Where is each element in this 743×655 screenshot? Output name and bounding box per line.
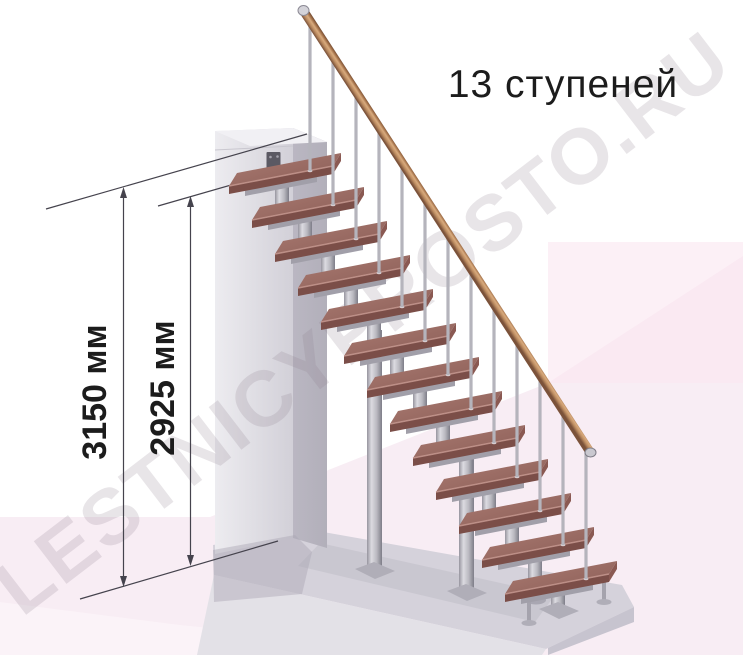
baluster <box>354 90 357 239</box>
baluster <box>492 302 495 443</box>
baluster <box>446 231 449 375</box>
support-column <box>367 330 382 566</box>
handrail-top-cap <box>298 6 309 16</box>
baluster <box>469 267 472 409</box>
baluster <box>423 196 426 341</box>
baluster <box>515 338 518 477</box>
baluster <box>377 125 380 273</box>
leg-foot <box>597 599 612 605</box>
bracket-bolt <box>276 155 279 158</box>
leg-foot <box>522 620 537 626</box>
dimension-label-overall: 3150 мм <box>76 324 114 459</box>
baluster <box>561 408 564 545</box>
baluster <box>584 444 587 579</box>
baluster <box>308 19 311 171</box>
dimension-label-tread: 2925 мм <box>144 320 182 455</box>
stair-diagram: LESTNICYPROSTO.RU 3150 мм 2925 мм 13 сту… <box>0 0 743 655</box>
baluster <box>538 373 541 511</box>
page-title: 13 ступеней <box>448 63 678 106</box>
baluster <box>331 54 334 205</box>
bracket-bolt <box>269 156 272 159</box>
handrail-end-cap <box>585 448 596 457</box>
baluster <box>400 160 403 307</box>
